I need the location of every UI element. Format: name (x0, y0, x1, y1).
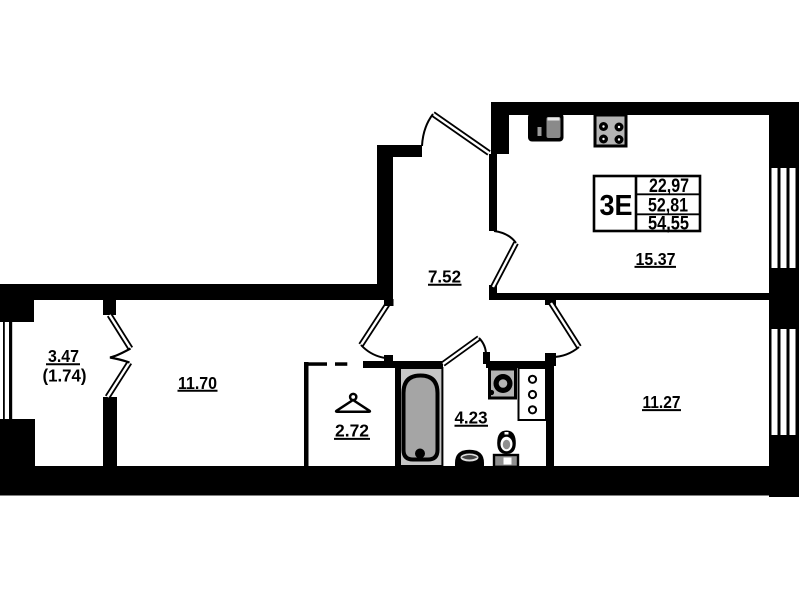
svg-text:(1.74): (1.74) (43, 366, 87, 386)
svg-text:2.72: 2.72 (335, 421, 369, 441)
svg-text:3.47: 3.47 (48, 346, 79, 366)
svg-text:7.52: 7.52 (428, 267, 461, 287)
svg-text:54,55: 54,55 (648, 213, 689, 235)
svg-text:4.23: 4.23 (455, 408, 488, 428)
svg-text:3Е: 3Е (600, 190, 633, 222)
